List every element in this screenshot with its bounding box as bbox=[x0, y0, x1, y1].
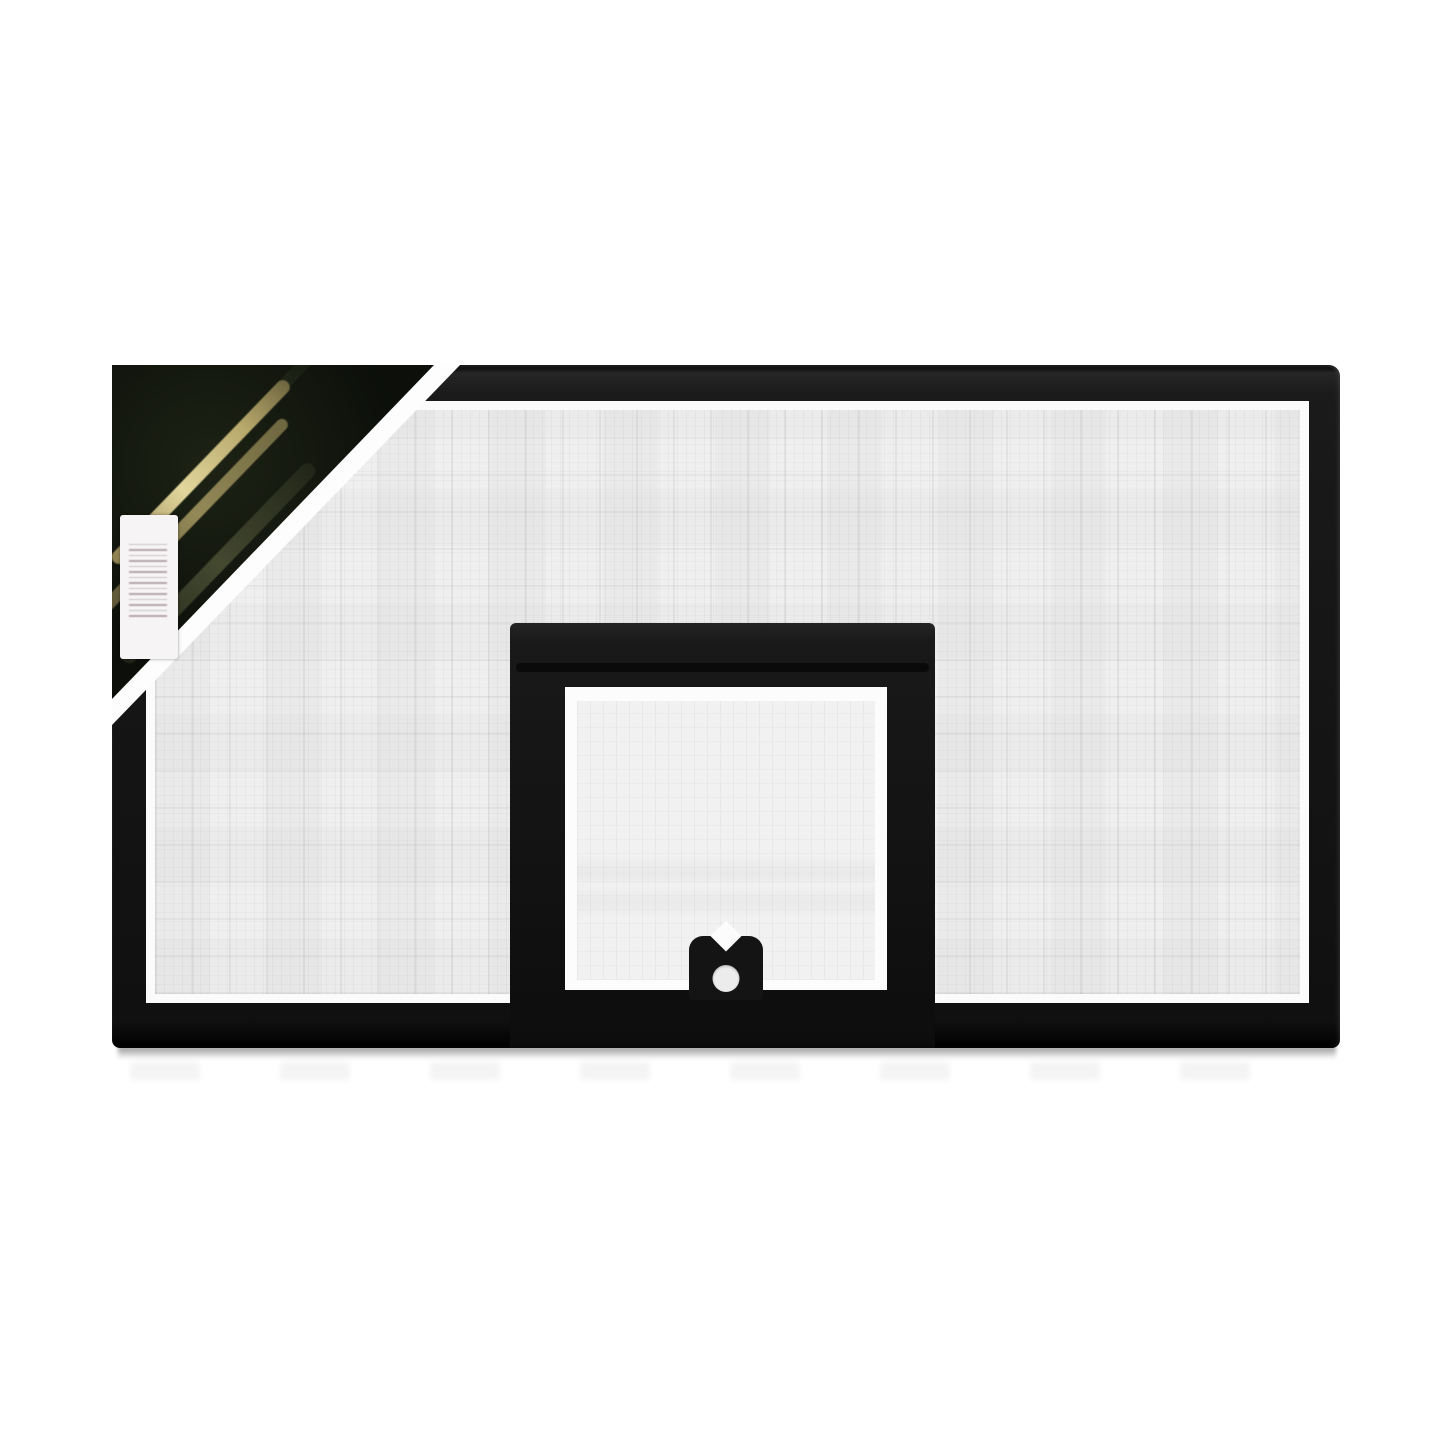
rim-mount-bracket bbox=[689, 936, 763, 1000]
board-drop-shadow bbox=[118, 1046, 1336, 1059]
product-photo bbox=[0, 0, 1445, 1445]
rim-bolt-hole bbox=[713, 965, 740, 992]
floor-reflection-smudge bbox=[130, 1062, 1290, 1080]
barcode-sticker bbox=[120, 515, 178, 659]
backboard-frame bbox=[112, 365, 1340, 1048]
barcode-icon bbox=[129, 541, 167, 617]
shooter-square-band bbox=[510, 623, 935, 1048]
shooter-square-interior bbox=[565, 687, 887, 990]
